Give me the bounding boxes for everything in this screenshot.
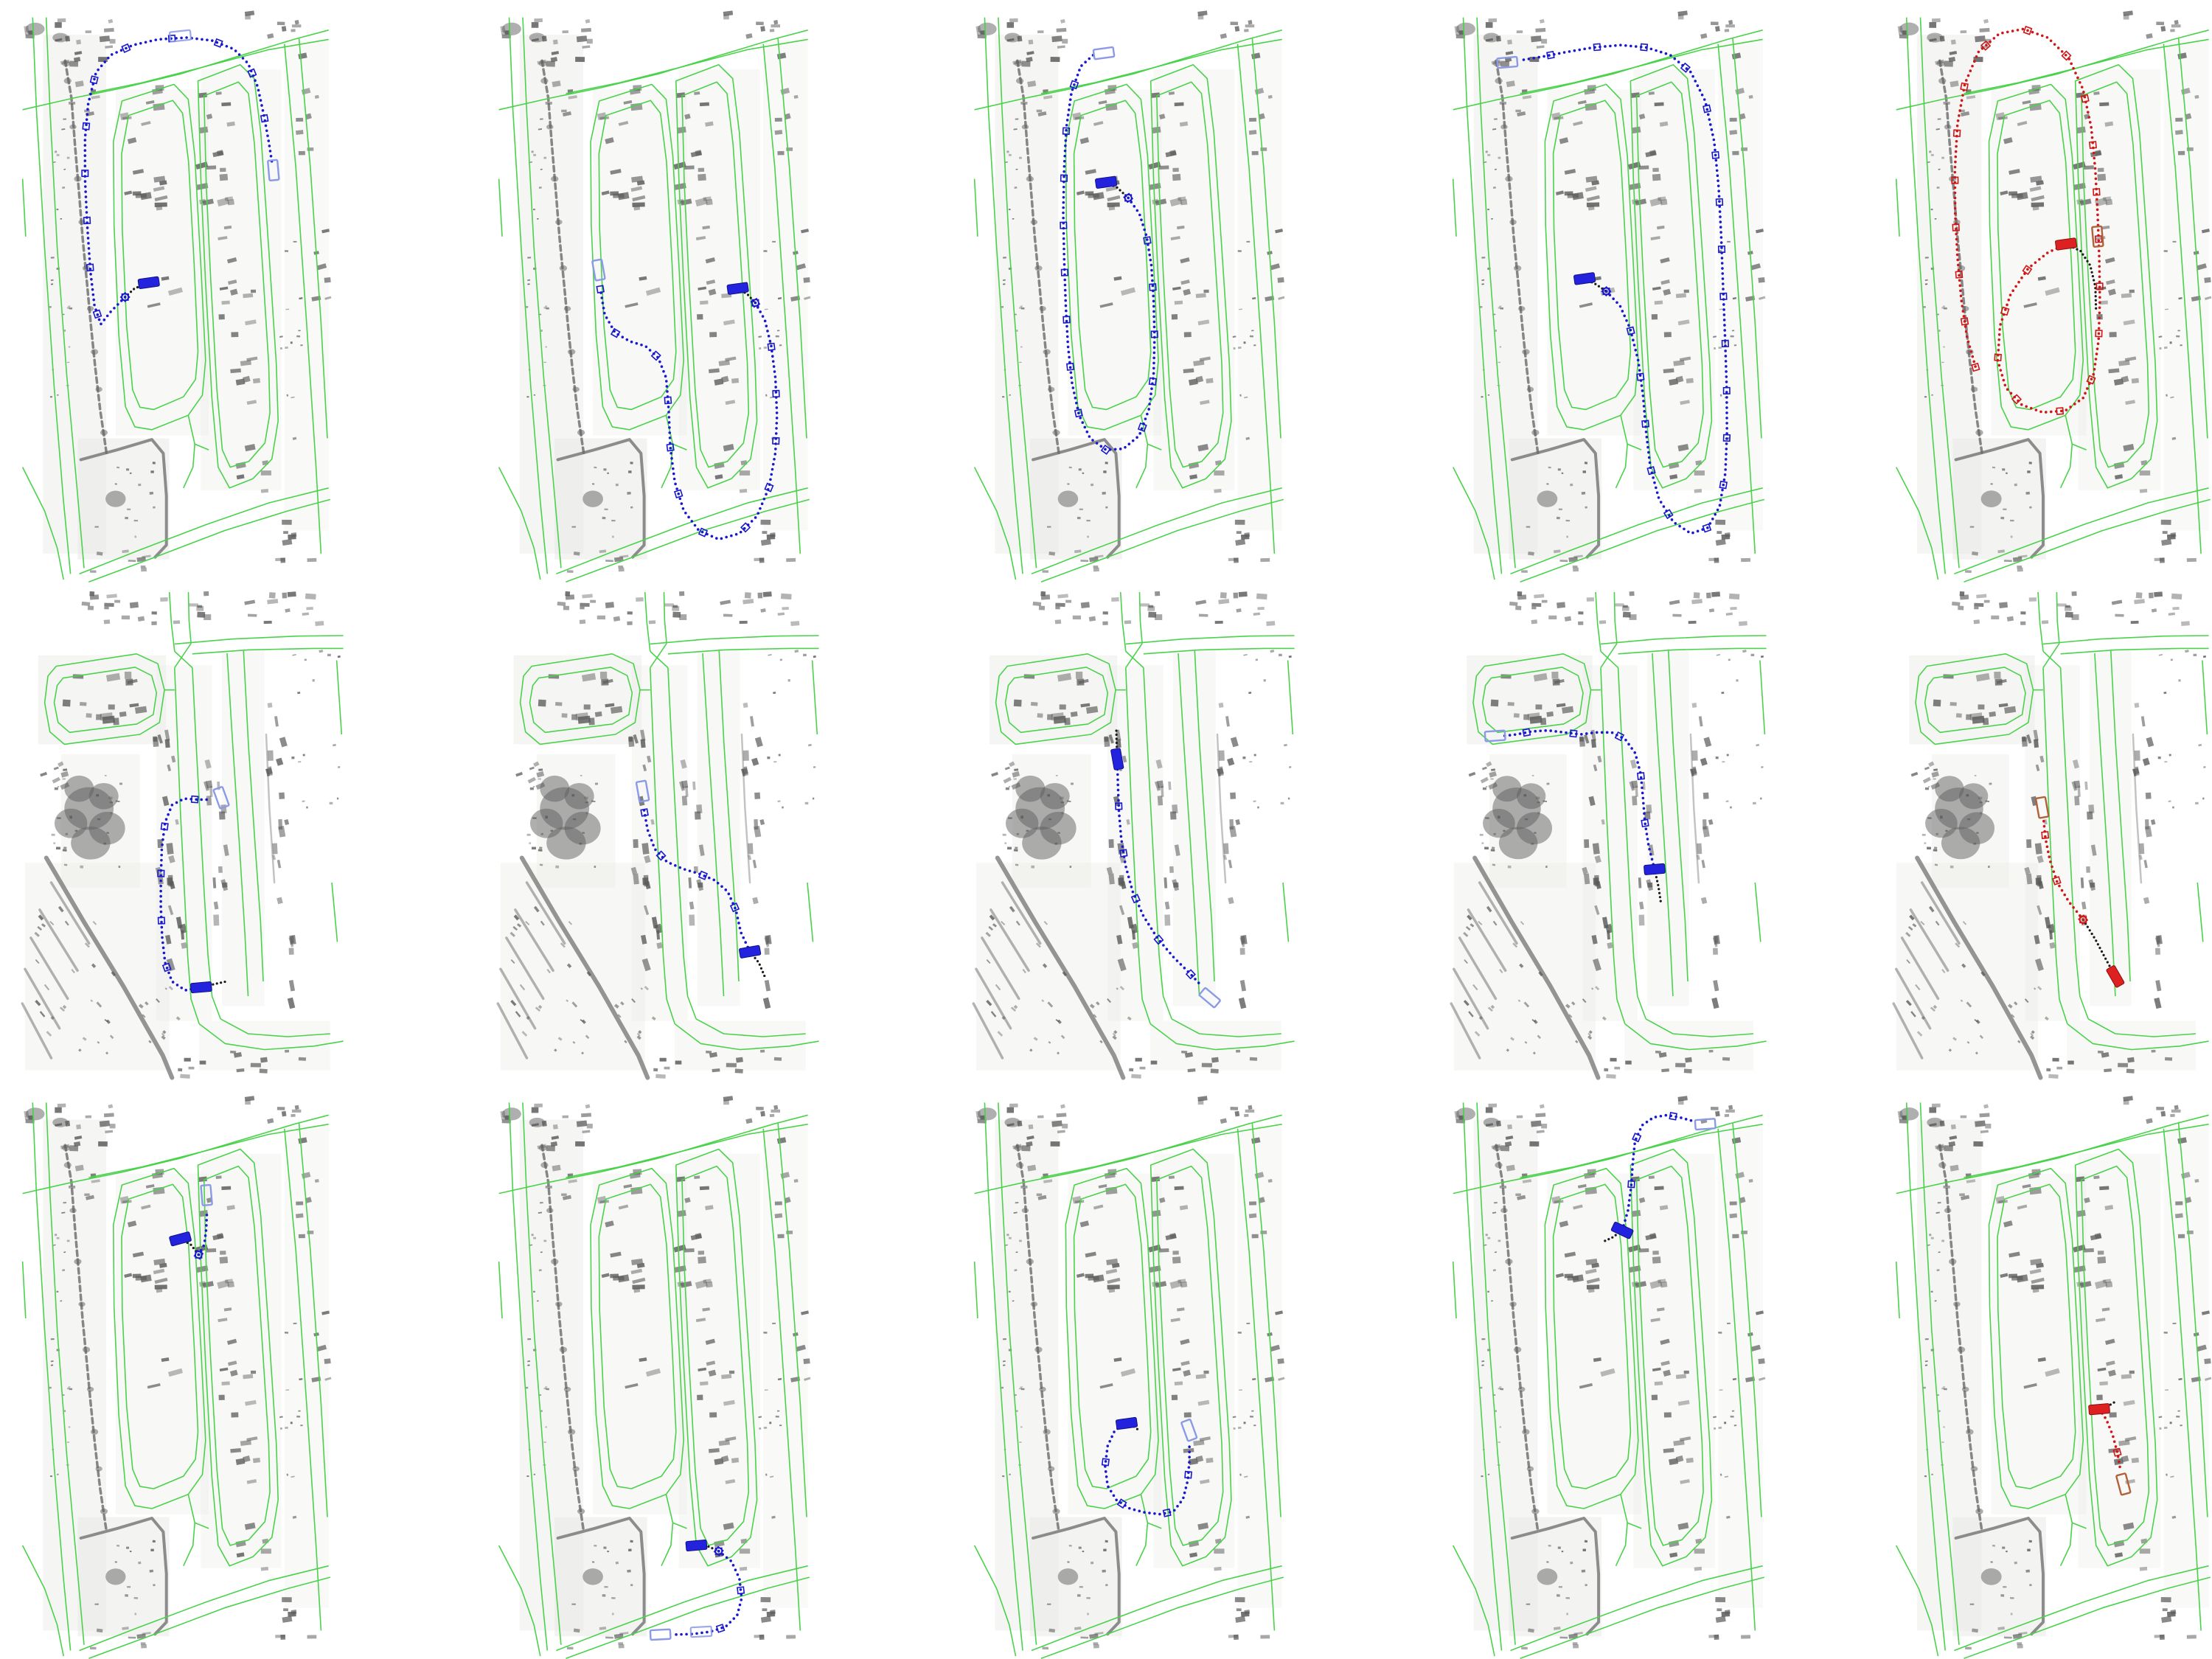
trajectory-panel-r2c4 (1447, 586, 1770, 1080)
panel-svg-r3c3 (968, 1091, 1285, 1659)
trajectory-panel-r1c1 (16, 6, 332, 582)
trajectory-panel-r2c5 (1890, 586, 2212, 1080)
vehicle-box (190, 981, 212, 992)
panel-svg-r3c1 (16, 1091, 332, 1659)
panel-svg-r1c2 (493, 6, 811, 582)
panel-svg-r3c5 (1890, 1091, 2212, 1659)
vehicle-box (1644, 863, 1665, 874)
trajectory-panel-r2c1 (18, 586, 347, 1080)
trajectory-panel-r2c3 (970, 586, 1298, 1080)
figure-grid (0, 0, 2212, 1659)
trajectory-panel-r1c2 (493, 6, 811, 582)
panel-svg-r2c5 (1890, 586, 2212, 1080)
panel-svg-r2c1 (18, 586, 347, 1080)
panel-svg-r1c3 (968, 6, 1285, 582)
panel-svg-r1c1 (16, 6, 332, 582)
trajectory-panel-r3c3 (968, 1091, 1285, 1659)
trajectory-panel-r3c5 (1890, 1091, 2212, 1659)
trajectory-panel-r1c3 (968, 6, 1285, 582)
trajectory-panel-r1c4 (1447, 6, 1766, 582)
vehicle-box (2089, 1404, 2110, 1415)
trajectory-panel-r3c2 (493, 1091, 811, 1659)
trajectory-panel-r3c1 (16, 1091, 332, 1659)
panel-svg-r2c2 (494, 586, 822, 1080)
trajectory-panel-r2c2 (494, 586, 822, 1080)
trajectory-panel-r3c4 (1447, 1091, 1766, 1659)
panel-svg-r1c4 (1447, 6, 1766, 582)
trajectory-panel-r1c5 (1890, 6, 2212, 582)
panel-svg-r1c5 (1890, 6, 2212, 582)
panel-svg-r3c2 (493, 1091, 811, 1659)
panel-svg-r2c4 (1447, 586, 1770, 1080)
panel-svg-r2c3 (970, 586, 1298, 1080)
vehicle-box (686, 1540, 707, 1551)
panel-svg-r3c4 (1447, 1091, 1766, 1659)
